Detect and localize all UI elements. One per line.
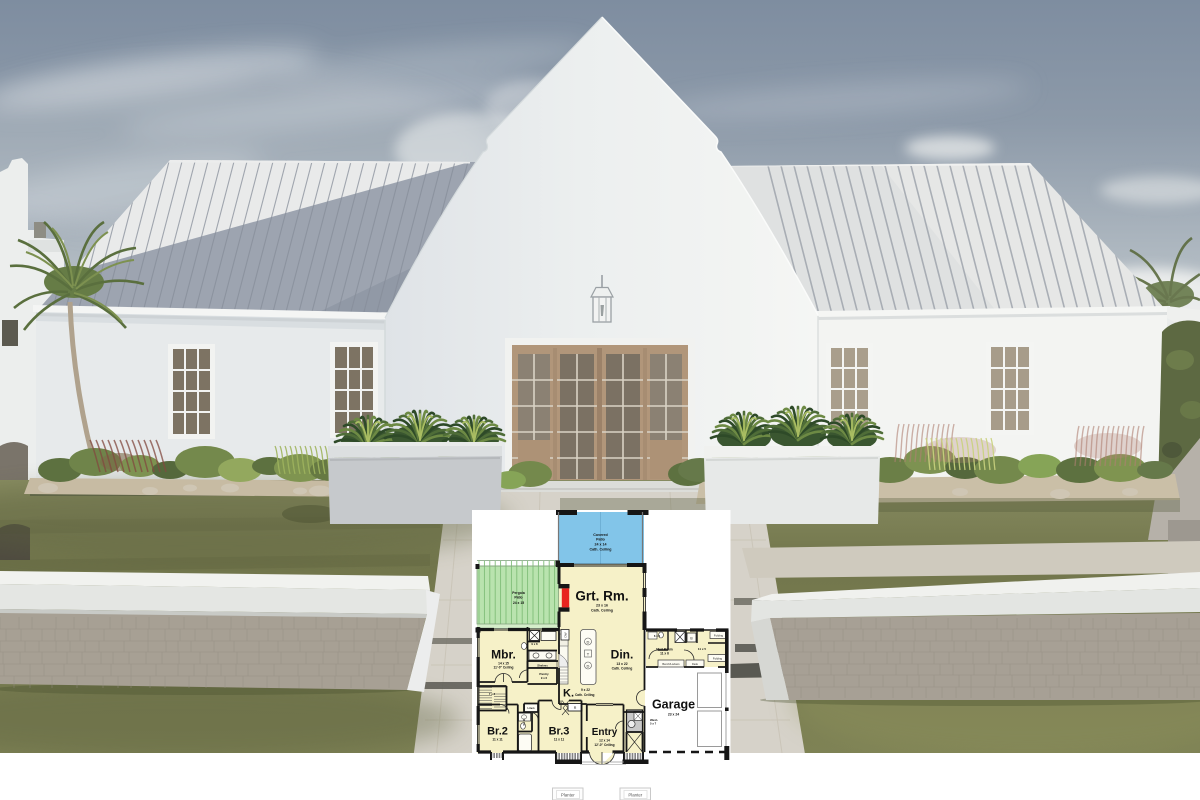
svg-text:Folding: Folding	[714, 634, 724, 638]
svg-text:Folding: Folding	[713, 657, 723, 661]
svg-text:Desk: Desk	[692, 662, 699, 666]
svg-text:K.: K.	[563, 688, 574, 700]
svg-text:23 x 24: 23 x 24	[668, 713, 679, 717]
svg-text:Bench/Lockers: Bench/Lockers	[662, 662, 680, 666]
svg-text:9 x 6: 9 x 6	[541, 676, 548, 680]
svg-text:11 x 5: 11 x 5	[698, 647, 707, 651]
svg-text:Grt. Rm.: Grt. Rm.	[575, 589, 628, 604]
svg-text:5 x 7: 5 x 7	[650, 722, 657, 726]
svg-text:Din.: Din.	[611, 648, 634, 662]
svg-text:12 x 14: 12 x 14	[599, 739, 610, 743]
svg-text:11 x 11: 11 x 11	[554, 738, 565, 742]
svg-text:6 x 3: 6 x 3	[654, 634, 661, 638]
svg-text:DW: DW	[564, 632, 568, 637]
svg-text:Pergola: Pergola	[512, 591, 525, 595]
svg-text:24 x 14: 24 x 14	[595, 543, 607, 547]
svg-text:Shelves: Shelves	[537, 664, 548, 668]
svg-text:Br.3: Br.3	[549, 726, 570, 738]
svg-text:Planter: Planter	[561, 793, 575, 798]
svg-text:R: R	[574, 706, 577, 710]
svg-text:7 x 8: 7 x 8	[489, 692, 496, 696]
svg-text:Cath. Ceiling: Cath. Ceiling	[612, 667, 633, 671]
svg-text:5 x 11: 5 x 11	[522, 718, 526, 726]
svg-text:13 x 22: 13 x 22	[616, 662, 627, 666]
svg-text:11 x 11: 11 x 11	[492, 738, 503, 742]
svg-text:24 x 15: 24 x 15	[513, 601, 524, 605]
svg-text:11 x 6: 11 x 6	[660, 652, 669, 656]
svg-text:Mbr.: Mbr.	[491, 648, 516, 662]
svg-text:Cath. Ceiling: Cath. Ceiling	[590, 548, 612, 552]
svg-text:Entry: Entry	[592, 727, 618, 738]
svg-text:Patio: Patio	[596, 538, 606, 542]
svg-text:Patio: Patio	[514, 596, 522, 600]
svg-text:9 x 8: 9 x 8	[531, 642, 538, 646]
svg-text:9 x 22: 9 x 22	[581, 688, 590, 692]
svg-text:23 x 16: 23 x 16	[596, 604, 608, 608]
svg-text:Garage: Garage	[652, 698, 695, 712]
svg-text:Cath. Ceiling: Cath. Ceiling	[575, 693, 595, 697]
svg-text:D: D	[587, 640, 590, 645]
svg-text:Cath. Ceiling: Cath. Ceiling	[591, 609, 613, 613]
svg-text:D: D	[587, 664, 590, 669]
svg-text:Planter: Planter	[628, 793, 642, 798]
svg-text:Br.2: Br.2	[487, 726, 508, 738]
svg-text:Linen: Linen	[528, 706, 535, 710]
svg-text:12'-0" Ceiling: 12'-0" Ceiling	[594, 743, 614, 747]
svg-text:Covered: Covered	[593, 533, 607, 537]
svg-text:11'-0" Ceiling: 11'-0" Ceiling	[494, 666, 514, 670]
